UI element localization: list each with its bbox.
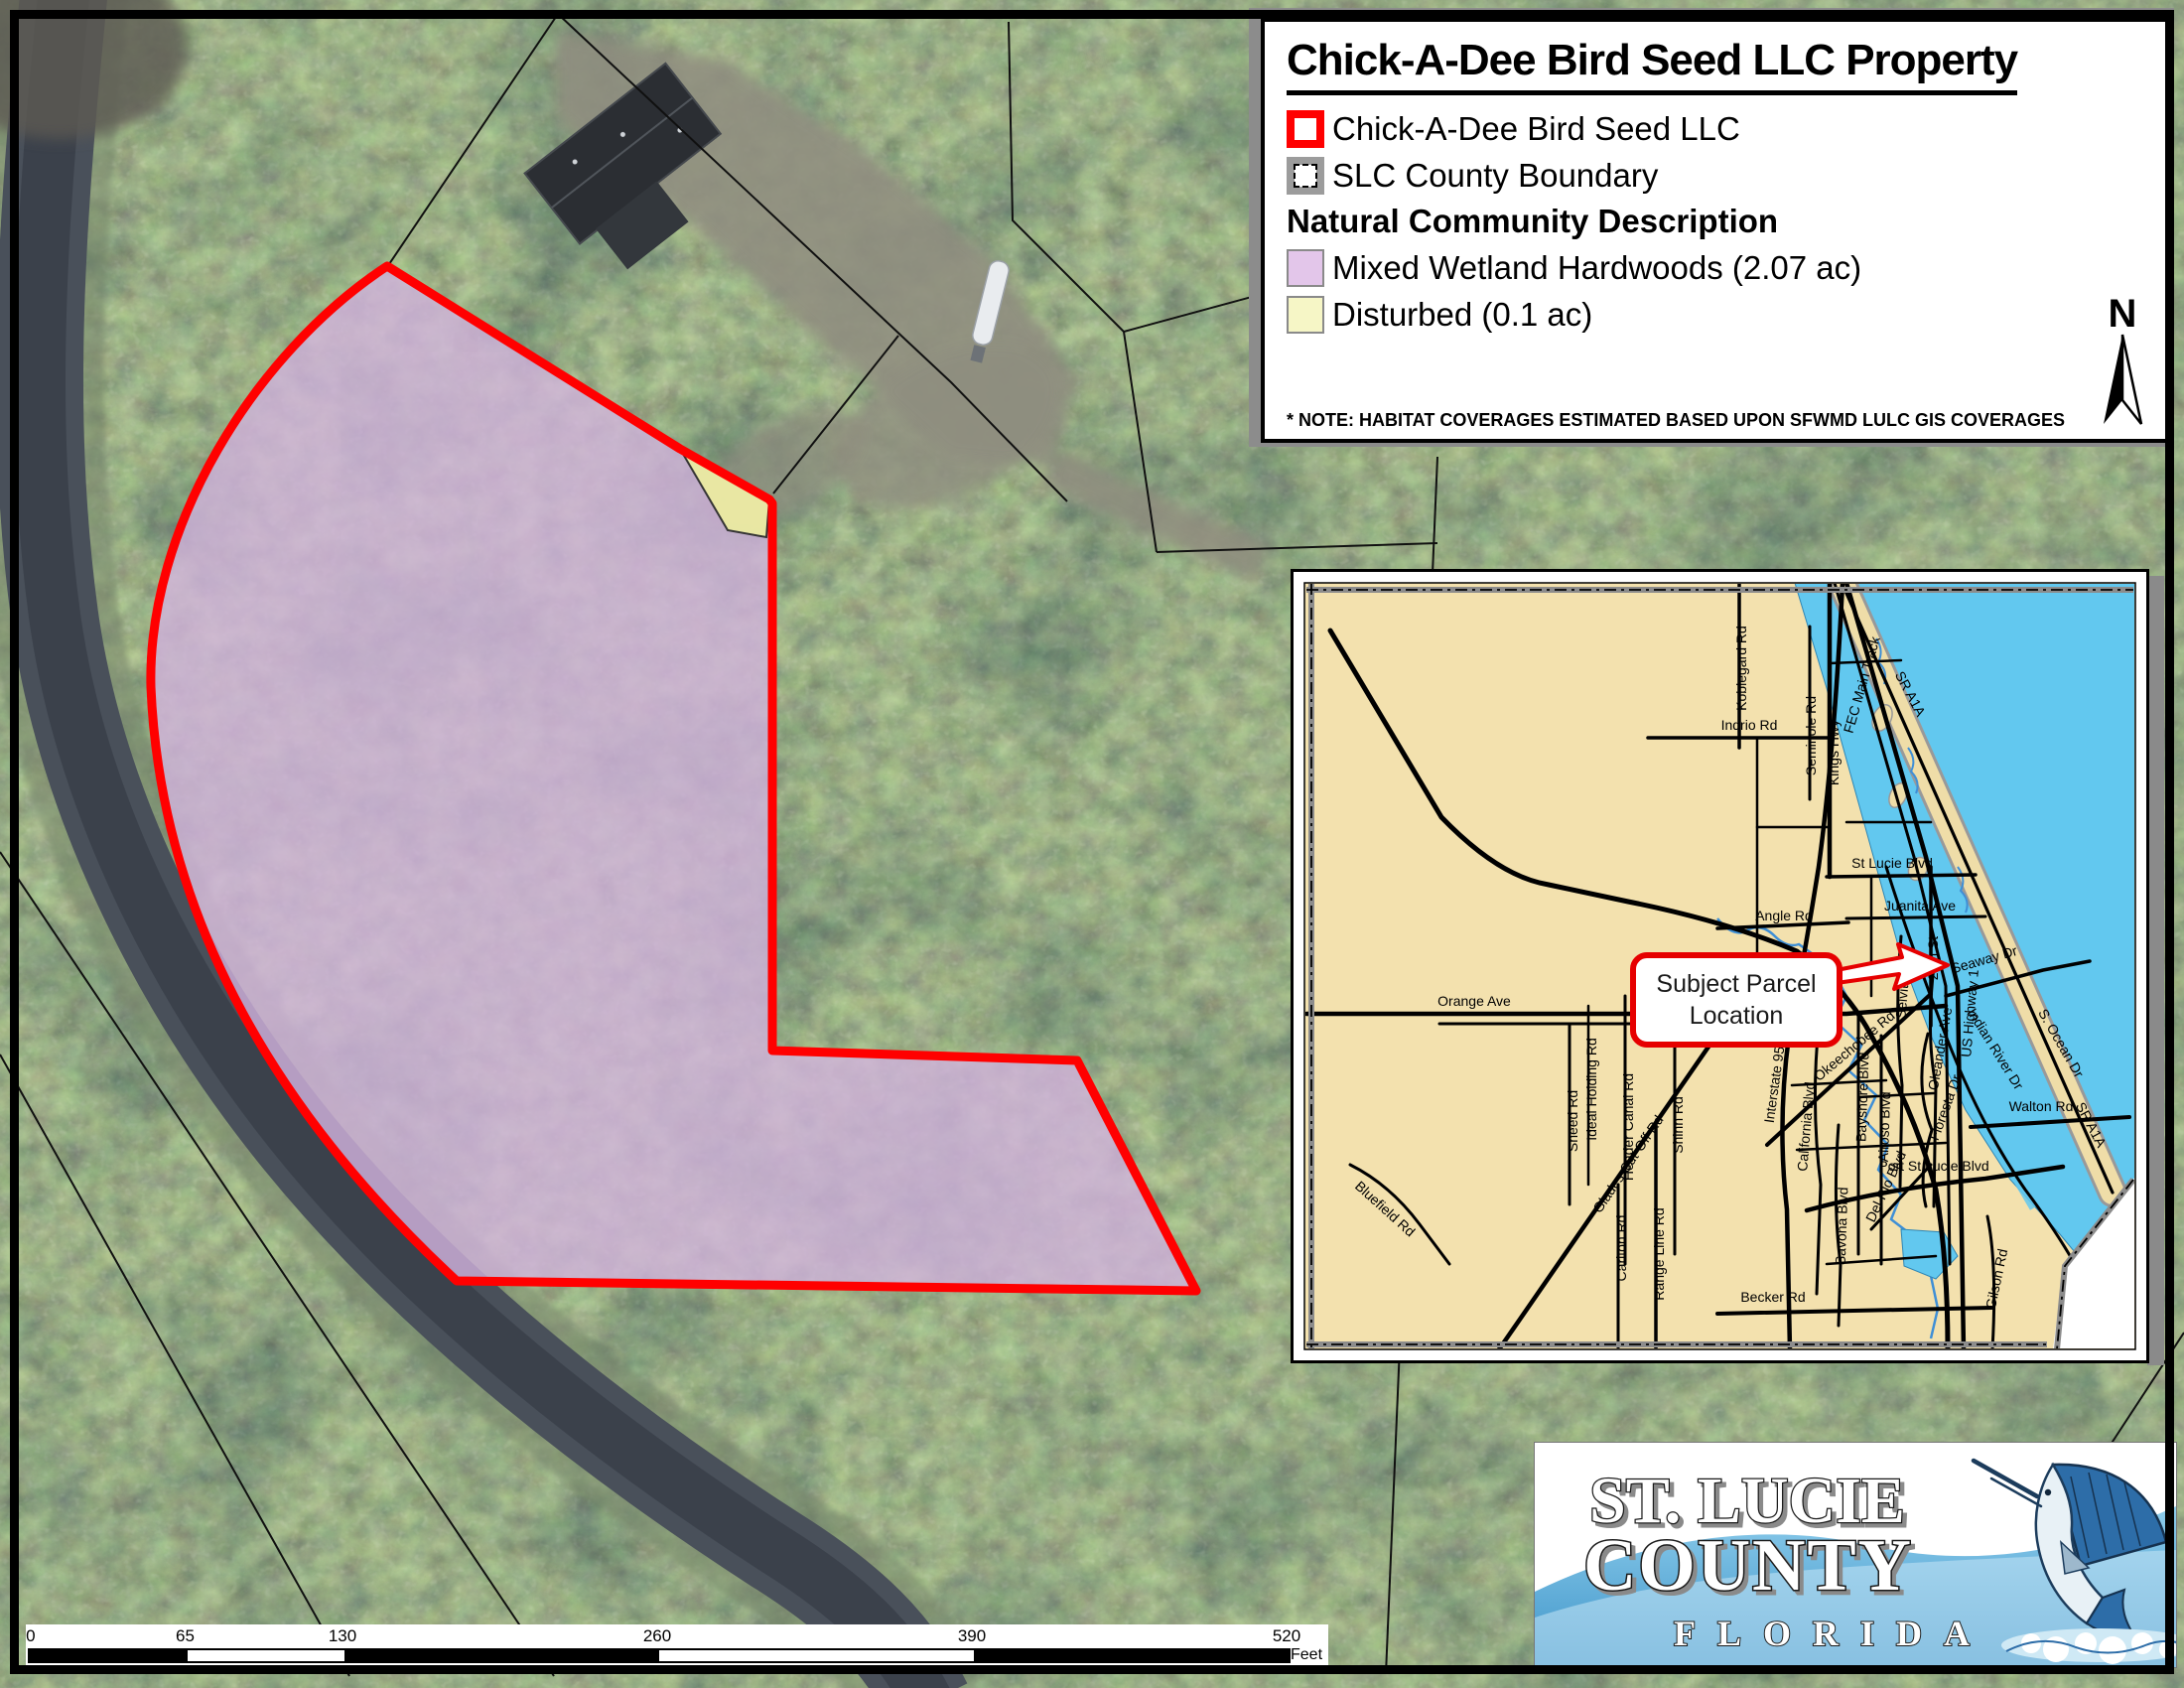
habitat-items: Mixed Wetland Hardwoods (2.07 ac)Disturb…	[1287, 244, 2146, 338]
inset-road-label: Kings Hwy	[1826, 720, 1842, 785]
scale-tick-label: 65	[176, 1626, 195, 1646]
logo-line3: FLORIDA	[1674, 1614, 1991, 1653]
legend-item-label: Chick-A-Dee Bird Seed LLC	[1332, 110, 1740, 148]
scale-bar-segment	[344, 1650, 659, 1661]
scale-tick-label: 520	[1273, 1626, 1300, 1646]
scale-tick-label: 260	[643, 1626, 671, 1646]
north-arrow: N	[2093, 295, 2152, 433]
inset-road-label: Airoso Blvd	[1875, 1091, 1893, 1162]
scale-bar-segment	[659, 1650, 974, 1661]
map-title: Chick-A-Dee Bird Seed LLC Property	[1287, 36, 2017, 95]
callout-line2: Location	[1690, 1002, 1784, 1030]
scale-tick-label: 0	[26, 1626, 35, 1646]
callout-line1: Subject Parcel	[1656, 970, 1816, 998]
habitat-label: Mixed Wetland Hardwoods (2.07 ac)	[1332, 249, 1861, 287]
inset-road-label: Ideal Holding Rd	[1583, 1038, 1599, 1141]
legend-items: Chick-A-Dee Bird Seed LLCSLC County Boun…	[1287, 105, 2146, 199]
legend-backdrop: Chick-A-Dee Bird Seed LLC Property Chick…	[1249, 8, 2174, 447]
north-label: N	[2093, 295, 2152, 333]
inset-drop-shadow	[2147, 576, 2164, 1365]
habitat-swatch-icon	[1287, 296, 1324, 334]
north-arrow-icon	[2099, 333, 2146, 428]
county-swatch-icon	[1287, 157, 1324, 195]
inset-road-label: Angle Rd	[1755, 908, 1813, 923]
habitat-swatch-icon	[1287, 249, 1324, 287]
legend-item: Chick-A-Dee Bird Seed LLC	[1287, 105, 2146, 152]
inset-road-label: Becker Rd	[1740, 1289, 1805, 1305]
legend-note: * NOTE: HABITAT COVERAGES ESTIMATED BASE…	[1287, 410, 2146, 433]
inset-road-label: Shinn Rd	[1670, 1096, 1686, 1154]
inset-road-label: Koblegard Rd	[1733, 626, 1749, 711]
inset-road-label: Orange Ave	[1437, 993, 1511, 1009]
inset-road-label: Sneed Rd	[1565, 1090, 1580, 1152]
scale-bar-segment	[30, 1650, 188, 1661]
inset-road-label: Walton Rd	[2009, 1098, 2074, 1114]
scale-tick-label: 390	[958, 1626, 986, 1646]
inset-location-map: Koblegard RdIndrio RdSeminole RdKings Hw…	[1291, 569, 2149, 1363]
habitat-item: Disturbed (0.1 ac)	[1287, 291, 2146, 338]
scale-unit-label: Feet	[1291, 1646, 1322, 1664]
inset-road-label: Indrio Rd	[1721, 717, 1778, 733]
inset-road-label: Bayshore Blvd	[1852, 1052, 1871, 1142]
inset-road-label: St Lucie Blvd	[1851, 855, 1933, 871]
legend-item: SLC County Boundary	[1287, 152, 2146, 199]
scale-tick-label: 130	[329, 1626, 356, 1646]
scale-bar-segments	[28, 1648, 1291, 1663]
legend-panel: Chick-A-Dee Bird Seed LLC Property Chick…	[1261, 18, 2170, 443]
inset-road-label: Juanita Ave	[1884, 898, 1956, 914]
inset-road-label: Range Line Rd	[1651, 1207, 1667, 1300]
map-sheet: Koblegard RdIndrio RdSeminole RdKings Hw…	[0, 0, 2184, 1688]
scale-bar-segment	[188, 1650, 345, 1661]
logo-line2: COUNTY	[1583, 1525, 1911, 1607]
inset-road-label: Savona Blvd	[1833, 1187, 1851, 1265]
parcel-swatch-icon	[1287, 110, 1324, 148]
scale-bar-segment	[974, 1650, 1289, 1661]
habitat-item: Mixed Wetland Hardwoods (2.07 ac)	[1287, 244, 2146, 291]
scale-bar: 065130260390520 Feet	[26, 1624, 1328, 1672]
county-logo: ST. LUCIE ST. LUCIE COUNTY COUNTY FLORID…	[1534, 1442, 2177, 1668]
inset-road-label: Port St Lucie Blvd	[1878, 1158, 1988, 1174]
county-logo-art: ST. LUCIE ST. LUCIE COUNTY COUNTY FLORID…	[1535, 1443, 2176, 1667]
natural-community-heading: Natural Community Description	[1287, 199, 2146, 244]
habitat-label: Disturbed (0.1 ac)	[1332, 296, 1592, 334]
inset-road-label: Seminole Rd	[1803, 696, 1819, 775]
legend-item-label: SLC County Boundary	[1332, 157, 1658, 195]
inset-road-label: Carlton Rd	[1613, 1215, 1629, 1282]
